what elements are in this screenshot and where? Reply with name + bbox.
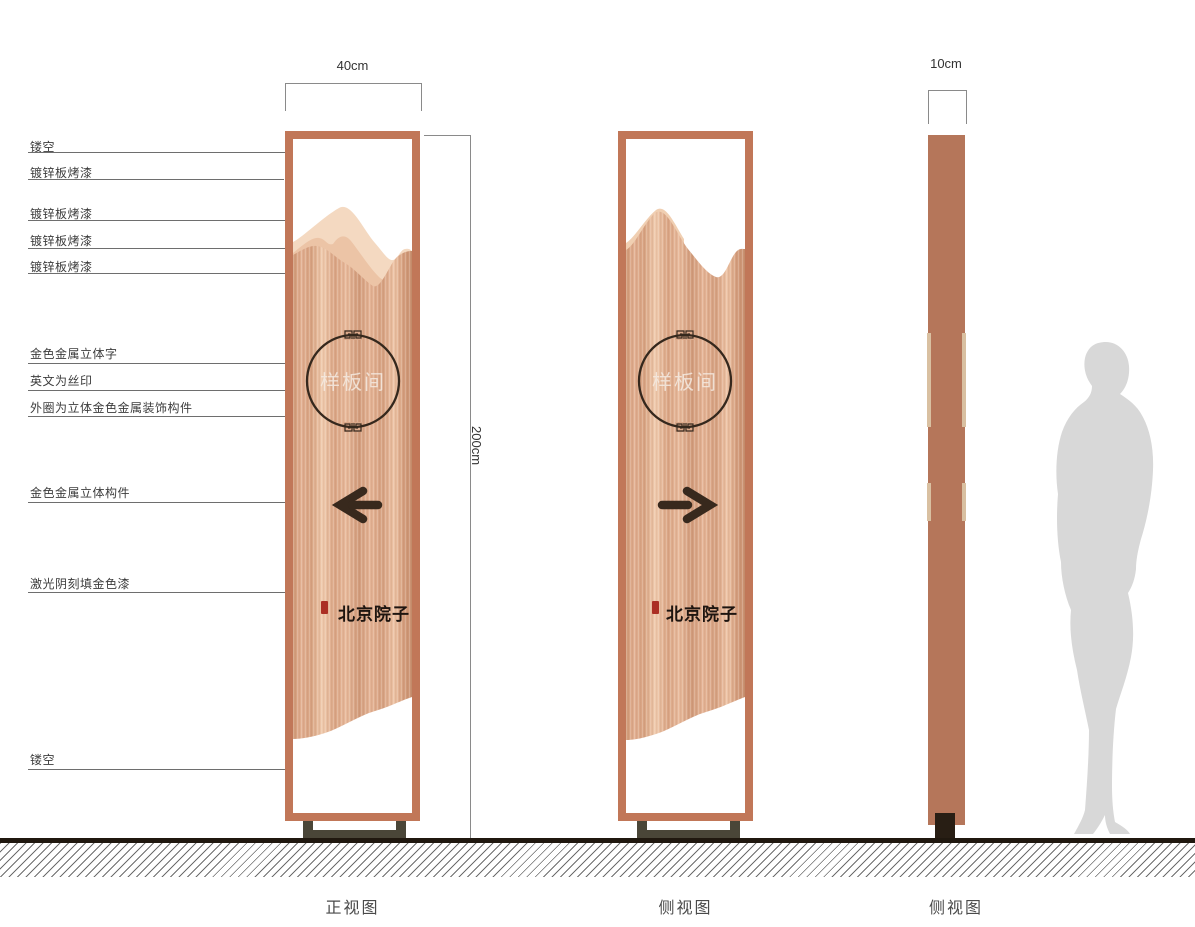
front-view-artwork: 样板间 北京院子 <box>293 139 412 813</box>
seal-stamp <box>652 601 659 614</box>
emblem-text: 样板间 <box>652 371 718 394</box>
gold-component-edge <box>927 333 931 427</box>
side-panel-base <box>637 821 740 838</box>
leader-line <box>28 220 322 221</box>
callout-laser-engraved: 激光阴刻填金色漆 <box>30 575 130 592</box>
callout-outer-ring: 外圈为立体金色金属装饰构件 <box>30 399 193 416</box>
emblem-text: 样板间 <box>320 371 386 394</box>
dimension-width-label: 40cm <box>285 58 420 73</box>
caption-side-view: 侧视图 <box>618 894 753 918</box>
callout-hollow-bottom: 镂空 <box>30 751 55 768</box>
callout-gold-3d-letters: 金色金属立体字 <box>30 345 118 362</box>
gold-component-edge <box>962 333 966 427</box>
dimension-height-label: 200cm <box>469 426 484 465</box>
leader-line <box>28 273 293 274</box>
dimension-depth-bracket <box>928 90 967 124</box>
dimension-height-line <box>470 135 471 838</box>
ground-hatch <box>0 843 1195 877</box>
seal-stamp <box>321 601 328 614</box>
front-panel-base <box>303 821 406 838</box>
side-view-artwork: 样板间 北京院子 <box>626 139 745 813</box>
caption-front-view: 正视图 <box>285 894 420 918</box>
leader-line <box>28 248 292 249</box>
dimension-width-bracket <box>285 83 422 111</box>
leader-line <box>28 769 300 770</box>
gold-component-edge <box>962 483 966 521</box>
brand-text: 北京院子 <box>338 604 410 625</box>
copper-brushed-texture <box>626 212 745 740</box>
callout-gold-3d-component: 金色金属立体构件 <box>30 484 130 501</box>
leader-line <box>28 152 306 153</box>
dimension-depth-label: 10cm <box>916 56 976 71</box>
dimension-height-tick <box>424 135 470 136</box>
callout-english-silkscreen: 英文为丝印 <box>30 372 93 389</box>
callout-galvanized-3: 镀锌板烤漆 <box>30 232 93 249</box>
leader-line <box>28 592 314 593</box>
profile-base-foot <box>935 813 955 838</box>
caption-profile-view: 侧视图 <box>896 894 1016 918</box>
front-view-panel: 样板间 北京院子 <box>285 131 420 821</box>
side-view-panel: 样板间 北京院子 <box>618 131 753 821</box>
human-figure-silhouette <box>1028 336 1168 836</box>
gold-component-edge <box>927 483 931 521</box>
brand-text: 北京院子 <box>666 604 738 625</box>
signage-spec-drawing: 镂空 镀锌板烤漆 镀锌板烤漆 镀锌板烤漆 镀锌板烤漆 金色金属立体字 英文为丝印… <box>0 0 1195 927</box>
leader-line <box>28 179 284 180</box>
profile-view-panel <box>928 135 965 825</box>
